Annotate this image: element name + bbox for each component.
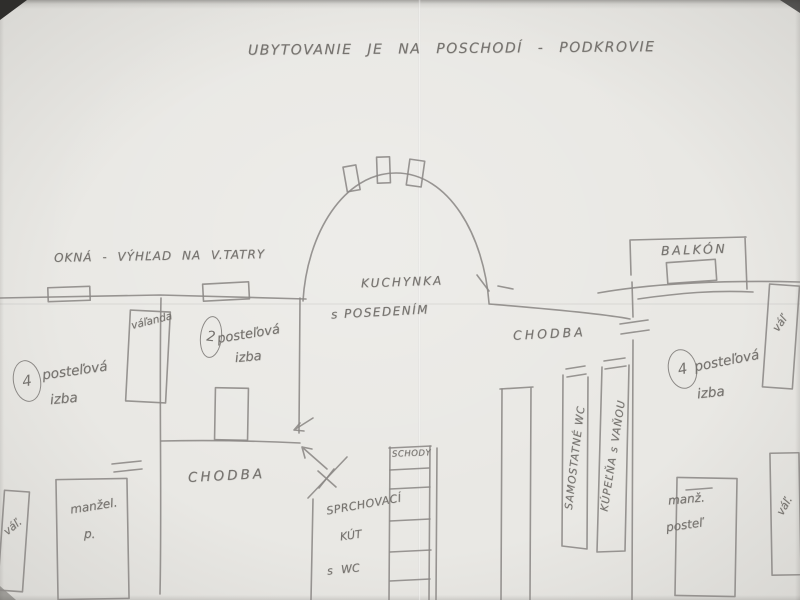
bed-left-bottom-daybed bbox=[0, 490, 29, 592]
window-left-2 bbox=[203, 282, 250, 301]
wall-top-middle-right bbox=[489, 304, 630, 319]
wall-top-left bbox=[0, 295, 306, 299]
floorplan-pencil-lines bbox=[0, 0, 800, 600]
stairs-label: SCHODY bbox=[392, 449, 431, 460]
door-marks-right-room bbox=[620, 320, 649, 334]
small-bedroom-label-line2: izba bbox=[234, 350, 262, 367]
wall-corridor-left bbox=[160, 298, 161, 594]
window-left-1 bbox=[48, 286, 90, 301]
bathroom-door-marks bbox=[604, 358, 626, 369]
door-marks-left-corridor bbox=[112, 461, 142, 472]
left-bedroom-label-line2: izba bbox=[49, 391, 78, 408]
wall-column-top bbox=[500, 387, 533, 389]
roof-window-1 bbox=[343, 165, 360, 192]
stairs-right-wall-2 bbox=[436, 448, 437, 600]
door-tick-arch-right-2 bbox=[498, 286, 513, 289]
right-bedroom-number: 4 bbox=[676, 359, 689, 379]
bed-right-top-daybed bbox=[762, 284, 799, 389]
wc-door-marks bbox=[566, 366, 586, 377]
balcony-door bbox=[666, 259, 716, 283]
scanned-floorplan-sketch: UBYTOVANIE JE NA POSCHODÍ - PODKROVIE OK… bbox=[0, 0, 800, 600]
wall-shower-left bbox=[311, 499, 313, 600]
bed-room2 bbox=[215, 388, 249, 441]
small-bedroom-number: 2 bbox=[206, 329, 217, 346]
roof-window-2 bbox=[377, 157, 391, 183]
wall-column-right bbox=[530, 388, 531, 600]
left-bedroom-number: 4 bbox=[21, 371, 34, 390]
stairs-label-underline bbox=[390, 468, 429, 470]
wall-column-left bbox=[501, 389, 502, 600]
stairs-right-wall bbox=[429, 446, 430, 600]
door-swing-arrow-room2 bbox=[302, 447, 327, 469]
wall-room2-right bbox=[299, 298, 300, 433]
wall-right-room-left bbox=[632, 282, 633, 600]
left-double-bed-label-line2: p. bbox=[84, 528, 95, 541]
roof-window-3 bbox=[406, 159, 424, 187]
wall-right-room-top-inner bbox=[638, 291, 753, 299]
wall-room2-bottom bbox=[161, 441, 300, 443]
right-bedroom-label-line2: izba bbox=[696, 385, 725, 403]
bed-right-double-inner-line bbox=[686, 488, 712, 490]
balcony-label: BALKÓN bbox=[661, 242, 728, 258]
door-swing-arrow-kitchen bbox=[294, 418, 313, 431]
